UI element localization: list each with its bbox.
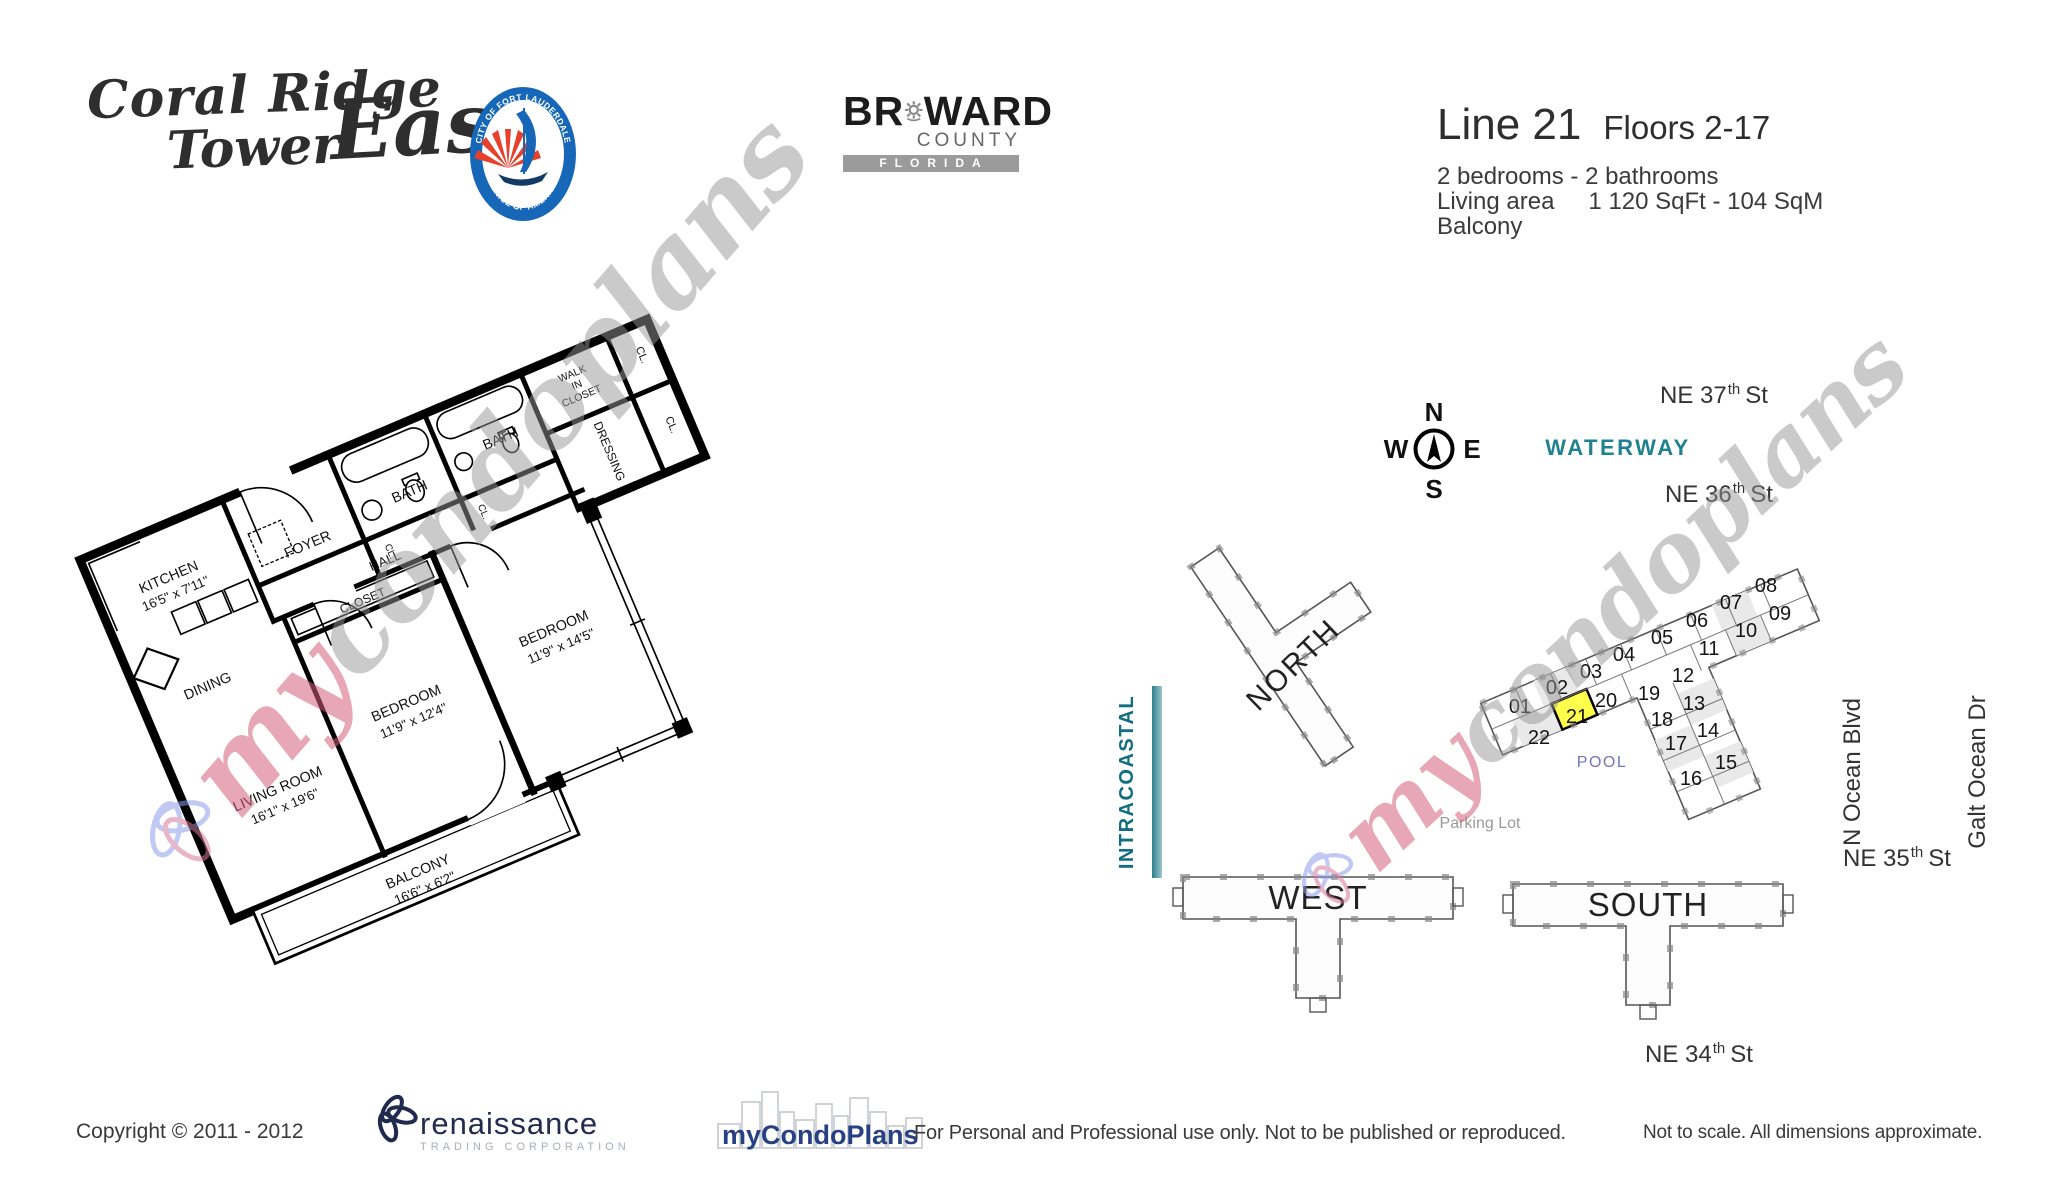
building-east: 01 02 03 04 05 06 07 08 09 10 11 12 13 1…: [1481, 569, 1871, 876]
unit-number-07: 07: [1720, 592, 1742, 614]
unit-floors: Floors 2-17: [1603, 109, 1770, 146]
unit-number-20: 20: [1595, 690, 1617, 712]
copyright-text: Copyright © 2011 - 2012: [76, 1120, 304, 1144]
unit-area-value: 1 120 SqFt - 104 SqM: [1588, 188, 1823, 215]
mycondoplans-text: myCondoPlans: [722, 1120, 919, 1151]
unit-number-10: 10: [1735, 620, 1757, 642]
broward-name-pre: BR: [843, 92, 904, 130]
unit-number-12: 12: [1672, 665, 1694, 687]
compass-w: W: [1384, 434, 1409, 464]
street-galt-ocean-dr: Galt Ocean Dr: [1964, 695, 1991, 848]
street-ne34: NE 34thSt: [1645, 1040, 1753, 1068]
unit-number-08: 08: [1755, 575, 1777, 597]
unit-number-03: 03: [1580, 661, 1602, 683]
unit-number-18: 18: [1651, 709, 1673, 731]
building-west: WEST: [1173, 877, 1463, 1012]
pool-label: POOL: [1577, 754, 1627, 771]
parking-lot-label: Parking Lot: [1440, 815, 1521, 832]
unit-number-15: 15: [1715, 752, 1737, 774]
unit-number-13: 13: [1683, 693, 1705, 715]
unit-number-14: 14: [1697, 720, 1719, 742]
building-west-label: WEST: [1268, 879, 1367, 916]
unit-line-label: Line 21: [1437, 100, 1581, 149]
broward-county-logo: BR WARD COUNTY FLORIDA: [843, 92, 1053, 172]
scale-note: Not to scale. All dimensions approximate…: [1643, 1122, 1982, 1144]
unit-area-label: Living area: [1437, 188, 1554, 215]
street-ne35: NE 35thSt: [1843, 844, 1951, 872]
unit-rooms: 2 bedrooms - 2 bathrooms: [1437, 164, 1823, 189]
floorplan: KITCHEN 16'5" x 7'11" FOYER BATH BATH WA…: [50, 250, 830, 1050]
unit-info: Line 21Floors 2-17 2 bedrooms - 2 bathro…: [1437, 100, 1823, 239]
unit-number-17: 17: [1665, 733, 1687, 755]
compass-s: S: [1425, 474, 1442, 504]
street-n-ocean-blvd: N Ocean Blvd: [1839, 698, 1866, 846]
broward-name-post: WARD: [924, 92, 1053, 130]
fort-lauderdale-seal-icon: CITY OF FORT LAUDERDALE VENICE OF AMERIC…: [468, 84, 578, 224]
unit-number-16: 16: [1680, 768, 1702, 790]
broward-florida-bar: FLORIDA: [843, 155, 1019, 172]
building-south: SOUTH: [1503, 884, 1793, 1019]
unit-number-11: 11: [1699, 638, 1720, 660]
unit-number-09: 09: [1769, 603, 1791, 625]
intracoastal-label: INTRACOASTAL: [1116, 695, 1138, 869]
unit-number-04: 04: [1613, 644, 1635, 666]
waterway-label: WATERWAY: [1545, 435, 1691, 460]
compass-e: E: [1463, 434, 1480, 464]
sitemap: N S W E NE 37thSt NE 36thSt NE 35thSt NE…: [1050, 260, 2048, 1080]
broward-name: BR WARD: [843, 92, 1053, 130]
unit-number-01: 01: [1509, 696, 1531, 718]
mycondoplans-logo: myCondoPlans: [716, 1090, 926, 1152]
street-ne36: NE 36thSt: [1665, 480, 1773, 508]
unit-number-22: 22: [1528, 727, 1550, 749]
street-ne37: NE 37thSt: [1660, 381, 1768, 409]
building-south-label: SOUTH: [1588, 886, 1709, 923]
unit-number-21: 21: [1566, 706, 1588, 728]
unit-number-05: 05: [1651, 627, 1673, 649]
unit-balcony: Balcony: [1437, 214, 1823, 239]
intracoastal-bar: [1152, 686, 1162, 878]
building-north: NORTH: [1191, 498, 1428, 766]
unit-number-19: 19: [1638, 683, 1660, 705]
renaissance-subtitle: TRADING CORPORATION: [420, 1141, 630, 1153]
renaissance-logo: renaissance TRADING CORPORATION: [372, 1093, 630, 1153]
sun-icon: [904, 92, 924, 130]
unit-number-02: 02: [1546, 677, 1568, 699]
trefoil-icon: [372, 1093, 418, 1149]
compass-n: N: [1425, 397, 1444, 427]
renaissance-name: renaissance: [420, 1107, 630, 1141]
unit-number-06: 06: [1686, 610, 1708, 632]
floor-plan-sheet: { "header": { "brand": {"line1": "Coral …: [0, 0, 2048, 1181]
compass-icon: N S W E: [1384, 397, 1481, 504]
usage-notice: For Personal and Professional use only. …: [914, 1122, 1566, 1145]
